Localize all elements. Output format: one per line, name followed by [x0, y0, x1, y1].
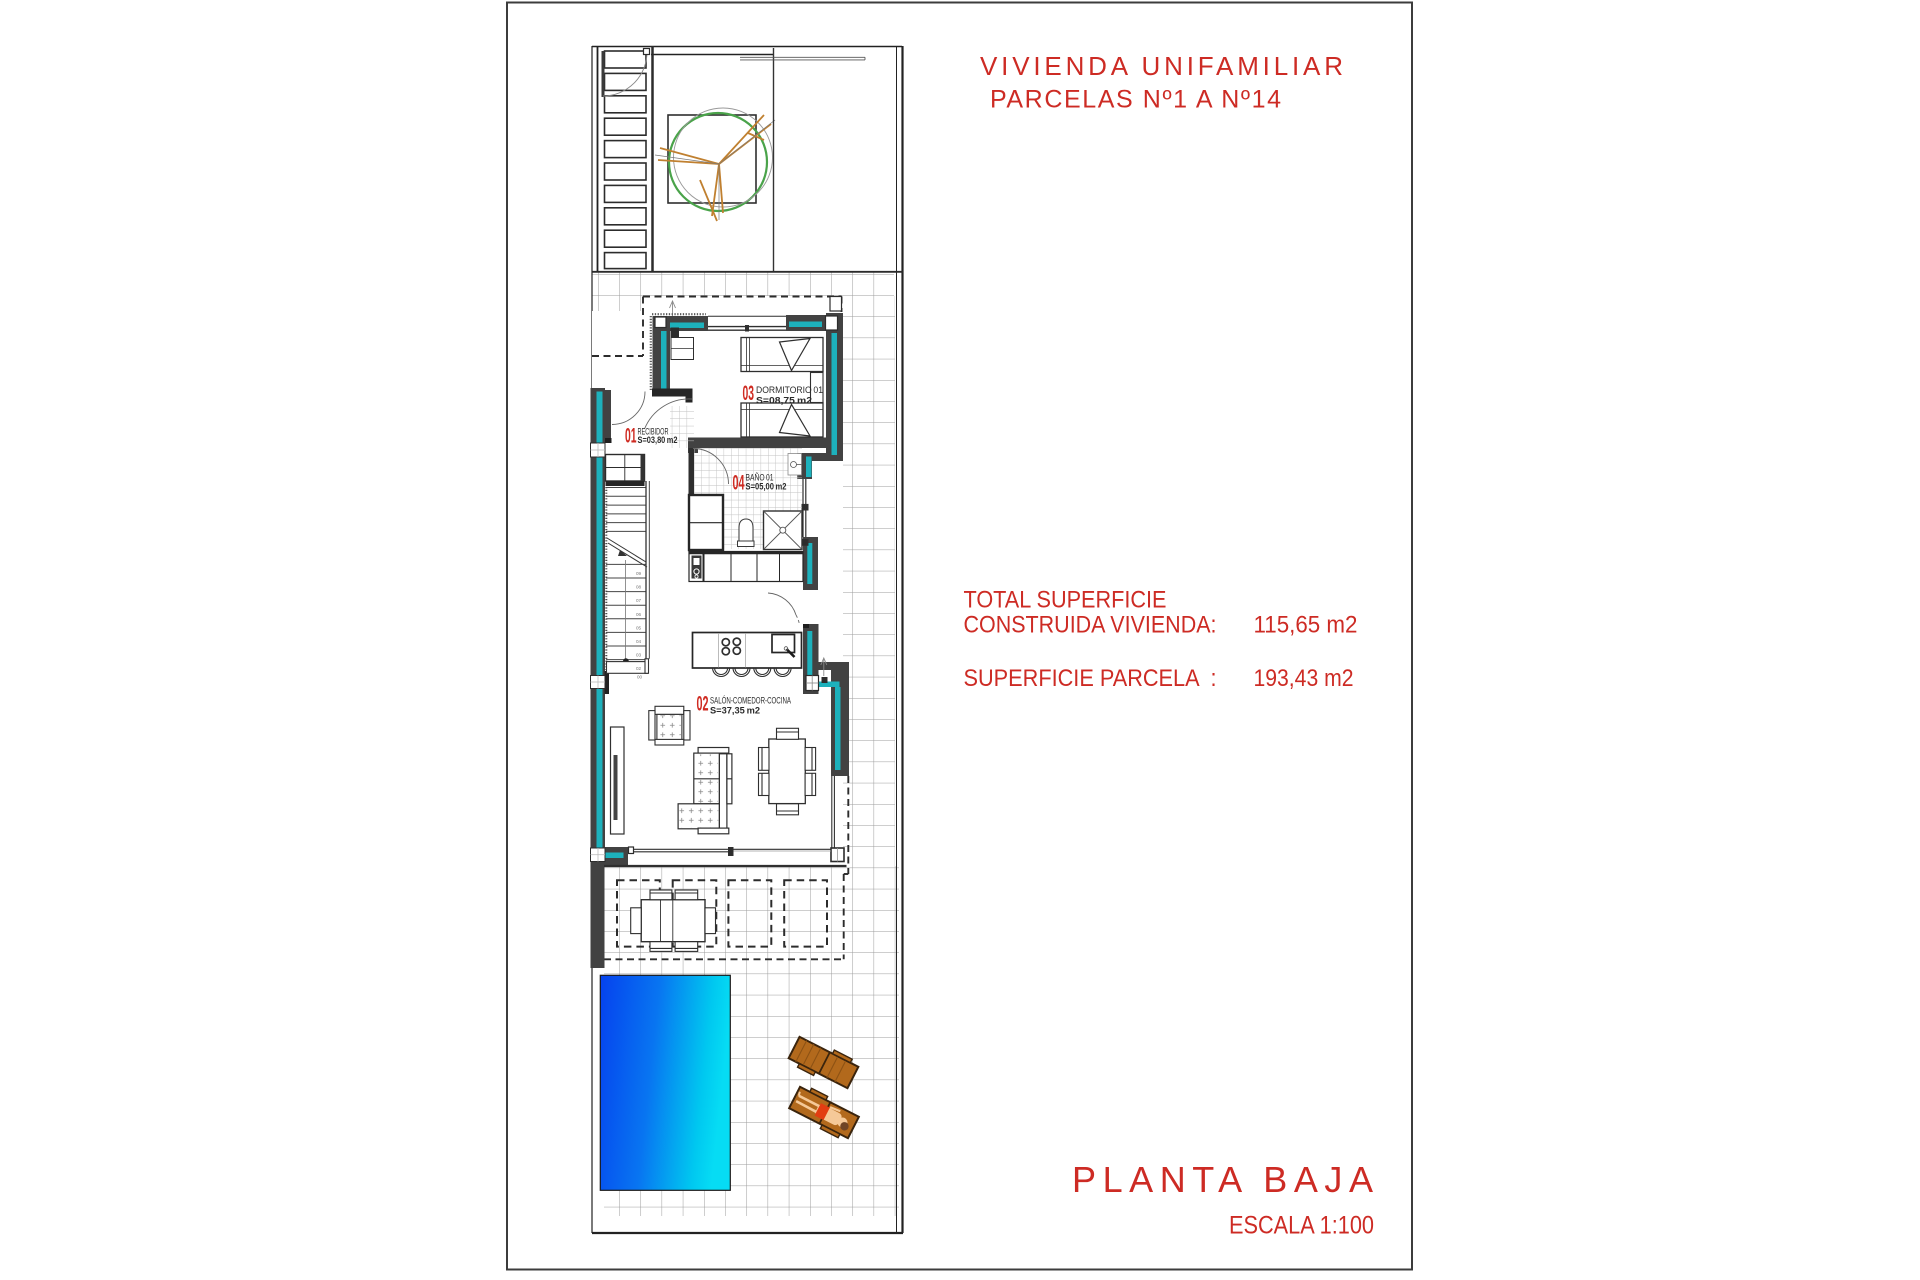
- svg-text:PARCELAS Nº1 A Nº14: PARCELAS Nº1 A Nº14: [990, 86, 1283, 114]
- svg-text:02: 02: [636, 666, 642, 671]
- svg-text:DORMITORIO 01: DORMITORIO 01: [756, 385, 823, 396]
- svg-text:S=08,75 m2: S=08,75 m2: [756, 396, 812, 407]
- svg-text:08: 08: [636, 585, 642, 590]
- svg-text:TOTAL SUPERFICIE: TOTAL SUPERFICIE: [964, 587, 1167, 614]
- svg-text:ESCALA 1:100: ESCALA 1:100: [1229, 1212, 1374, 1240]
- svg-text:04: 04: [636, 639, 642, 644]
- svg-text:SUPERFICIE PARCELA :: SUPERFICIE PARCELA :: [964, 665, 1217, 692]
- svg-text:01: 01: [625, 425, 637, 448]
- svg-text:S=37,35 m2: S=37,35 m2: [710, 706, 760, 717]
- svg-text:PLANTA BAJA: PLANTA BAJA: [1072, 1159, 1373, 1200]
- svg-text:04: 04: [733, 472, 745, 495]
- svg-text:CONSTRUIDA VIVIENDA:: CONSTRUIDA VIVIENDA:: [964, 612, 1217, 639]
- svg-text:115,65 m2: 115,65 m2: [1254, 612, 1358, 639]
- svg-text:S=05,00 m2: S=05,00 m2: [746, 482, 787, 493]
- svg-text:09: 09: [636, 571, 642, 576]
- svg-text:00: 00: [637, 675, 643, 680]
- svg-text:03: 03: [743, 382, 755, 405]
- svg-text:193,43 m2: 193,43 m2: [1254, 665, 1354, 692]
- svg-text:03: 03: [636, 653, 642, 658]
- svg-text:05: 05: [636, 625, 642, 630]
- svg-text:02: 02: [697, 693, 709, 716]
- svg-text:S=03,80 m2: S=03,80 m2: [638, 435, 678, 446]
- svg-text:06: 06: [636, 612, 642, 617]
- svg-text:07: 07: [636, 598, 642, 603]
